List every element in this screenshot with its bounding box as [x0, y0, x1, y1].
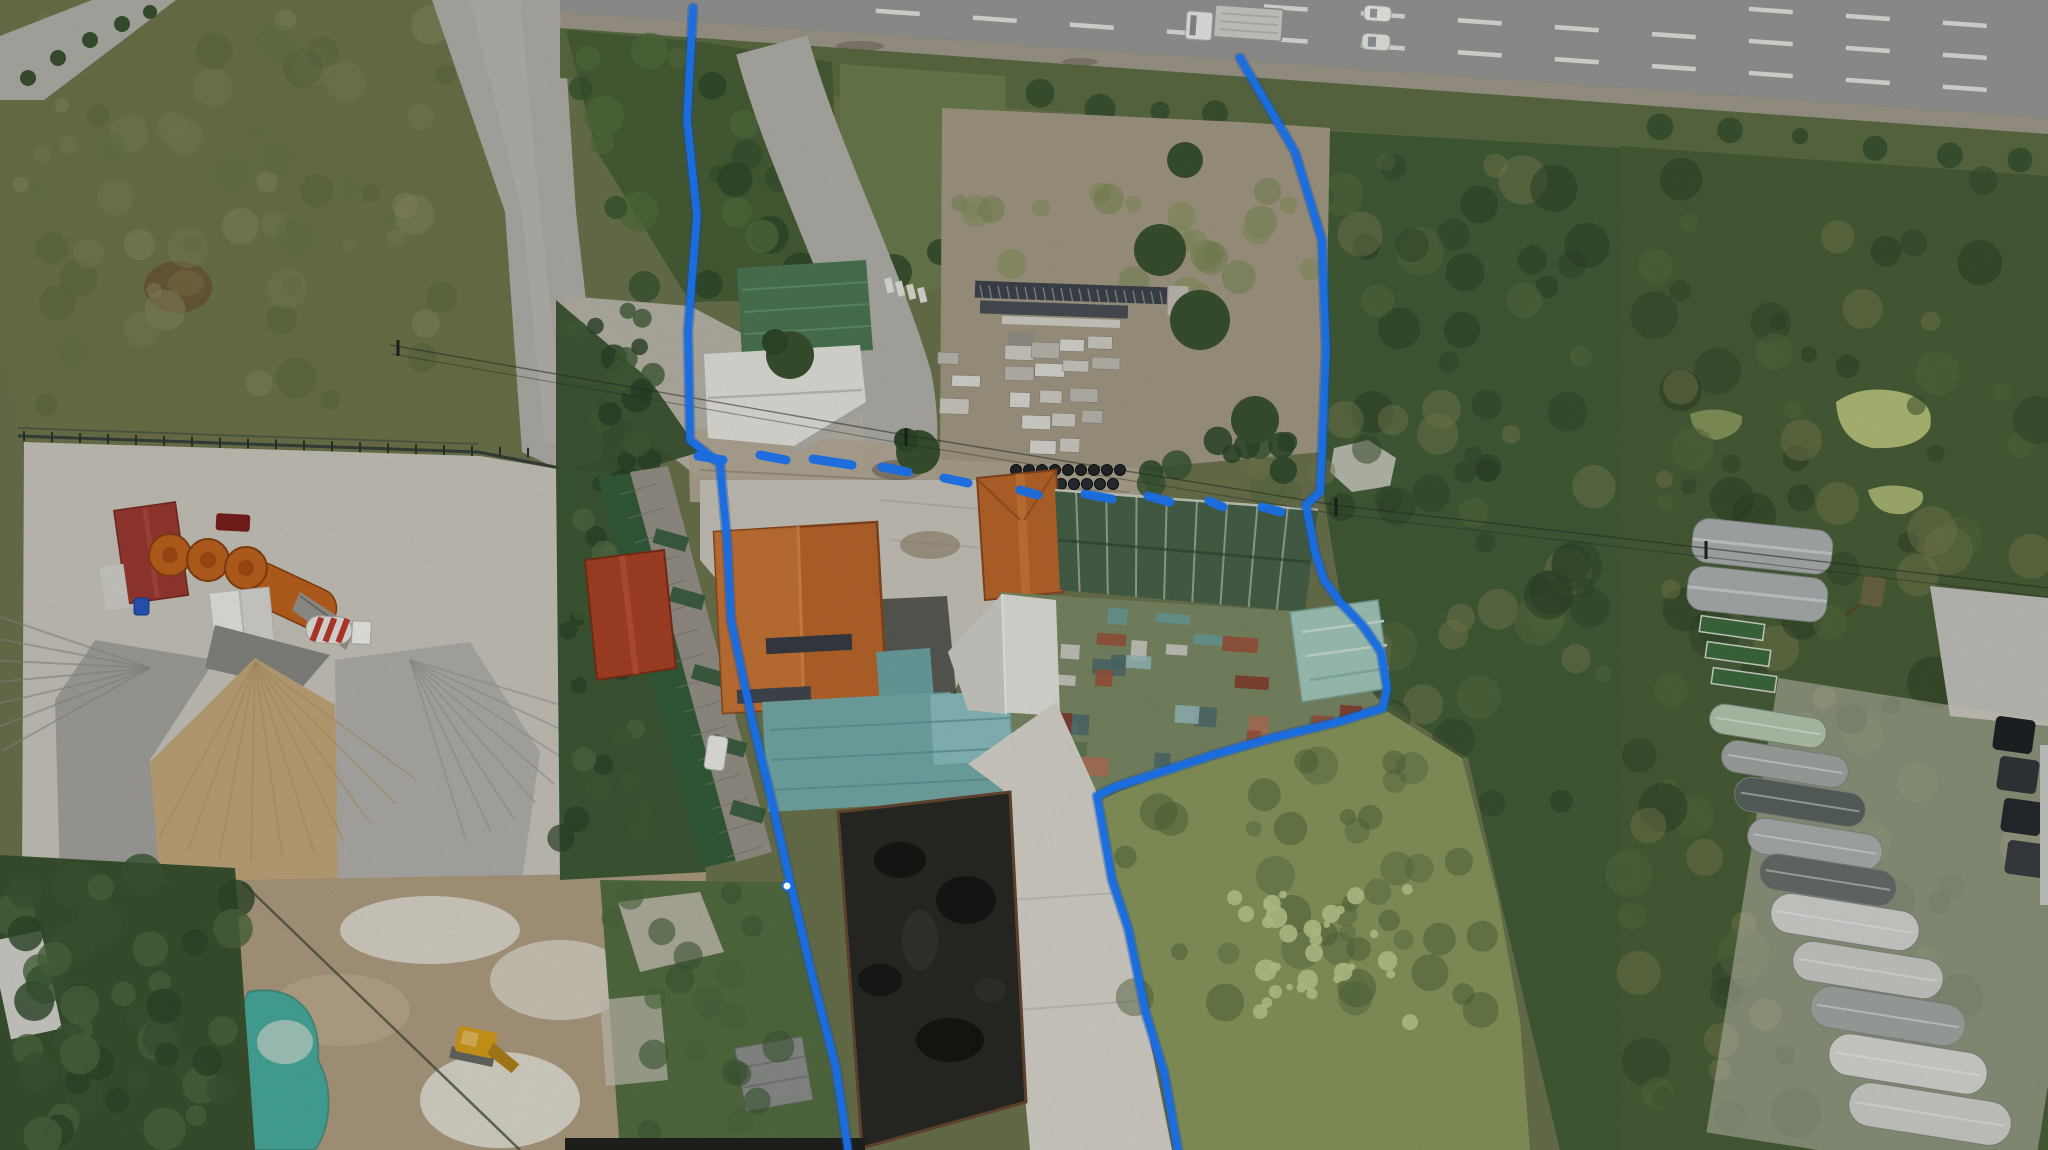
photo-grain	[0, 0, 2048, 1150]
aerial-photo	[0, 0, 2048, 1150]
boundary-dash	[698, 456, 723, 460]
boundary-dash	[813, 459, 852, 465]
boundary-vertex-dot	[783, 882, 792, 891]
boundary-dash	[760, 455, 786, 460]
boundary-dash	[1209, 501, 1223, 507]
boundary-dash	[1148, 496, 1170, 502]
boundary-dash	[1085, 494, 1112, 499]
boundary-dash	[1262, 507, 1281, 512]
boundary-dash	[882, 467, 908, 472]
boundary-dash	[944, 478, 968, 483]
boundary-dash	[1020, 490, 1038, 495]
